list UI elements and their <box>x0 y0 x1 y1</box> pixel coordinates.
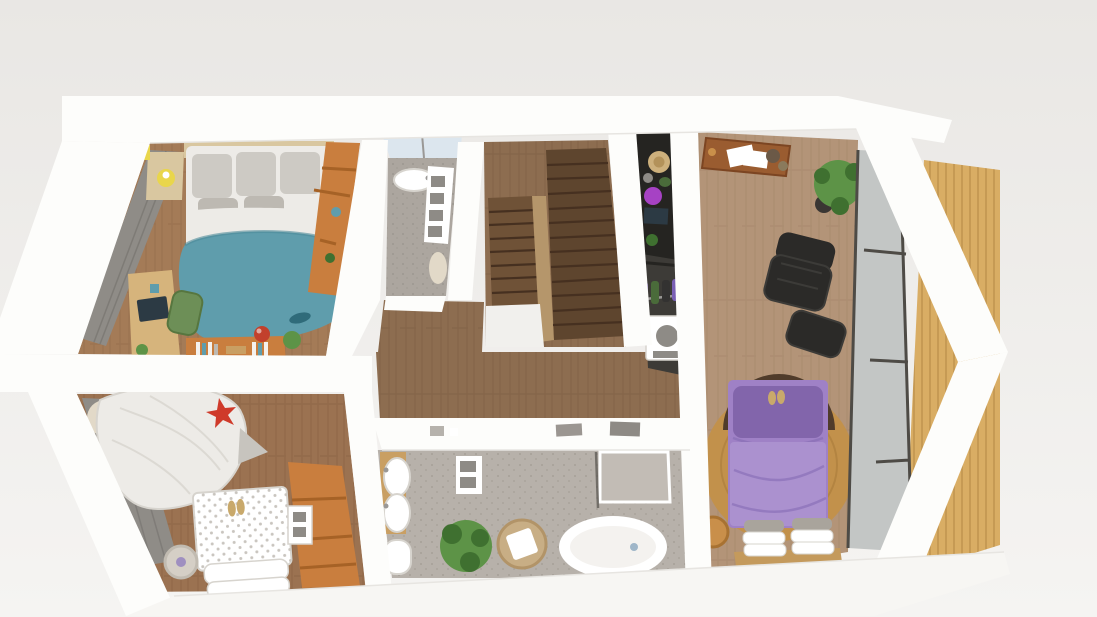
pillow <box>192 154 232 198</box>
purple-duvet <box>730 442 826 526</box>
polka-bed <box>193 487 294 599</box>
cabinet-door <box>460 477 476 488</box>
grey-item <box>643 173 653 183</box>
white-cabinet <box>288 506 312 544</box>
bathroom-half-wall <box>372 418 690 450</box>
cabinet-drawer <box>293 512 306 522</box>
cabinet-drawer <box>428 226 442 237</box>
vanity-sink <box>384 458 410 496</box>
shower-tray <box>600 452 670 502</box>
desk-papers <box>743 149 769 168</box>
sink-tap <box>384 504 389 509</box>
vanity-sink <box>384 494 410 532</box>
pillow-stack <box>791 518 834 554</box>
lamp-top <box>163 172 170 179</box>
hat-crown <box>654 157 665 168</box>
cabinet-drawer <box>430 193 444 204</box>
floorplan-render <box>0 0 1097 617</box>
washer-door <box>656 325 678 347</box>
wall-wc-bottom <box>384 296 446 312</box>
hallway-floor <box>376 352 690 420</box>
pouf-button <box>176 557 186 567</box>
stairs-landing <box>486 304 544 347</box>
plant-small <box>283 331 301 349</box>
desk-pot <box>778 161 788 171</box>
floorplan-svg <box>0 0 1097 617</box>
bath-plant <box>440 520 492 572</box>
pillow <box>280 152 320 194</box>
sink-tap <box>384 468 389 473</box>
cabinet-drawer <box>429 210 443 221</box>
cabinet-drawer <box>431 176 445 187</box>
slipper <box>777 390 785 404</box>
desk-trinket <box>708 148 716 156</box>
desk-plant <box>136 344 148 356</box>
washer-panel <box>653 351 681 358</box>
pillow <box>236 152 276 196</box>
purple-bag <box>644 187 662 205</box>
cabinet-door <box>460 461 476 472</box>
red-ball <box>254 326 270 342</box>
desk-cup <box>150 284 159 293</box>
bathtub-drain <box>630 543 638 551</box>
ball-highlight <box>257 329 262 334</box>
bathtub-basin <box>570 526 656 568</box>
green-item <box>659 177 671 187</box>
cabinet-drawer <box>293 527 306 537</box>
green-plant-item <box>646 234 658 246</box>
tv-screen <box>644 207 669 224</box>
bedroom-divider-wall <box>0 354 372 392</box>
shelf-toy <box>325 253 335 263</box>
slipper <box>768 391 776 405</box>
radiator <box>429 252 447 284</box>
shelf-toy <box>331 207 341 217</box>
desk-pot <box>766 149 780 163</box>
pillow-stack <box>743 520 786 556</box>
laptop <box>137 296 170 322</box>
